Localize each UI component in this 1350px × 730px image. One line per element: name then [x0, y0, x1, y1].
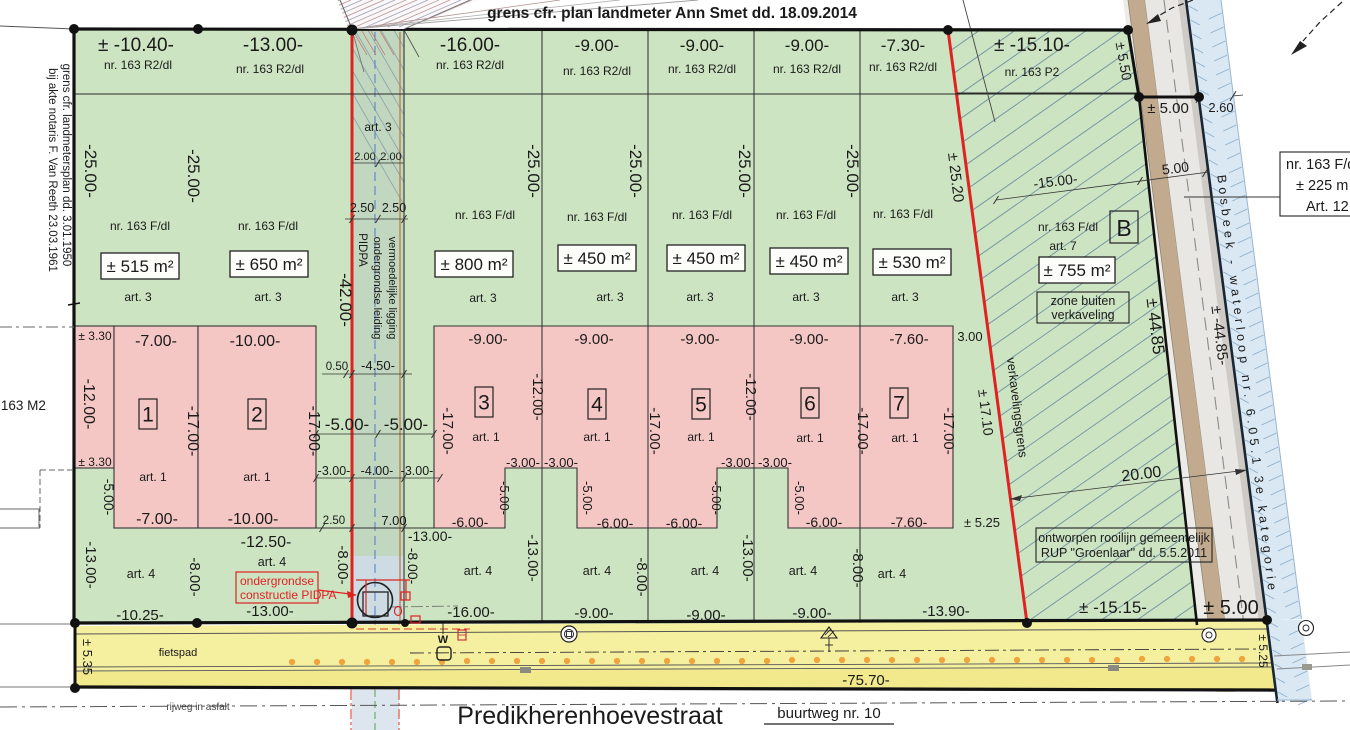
svg-text:-3.00-: -3.00- — [758, 455, 792, 470]
svg-text:-17.00-: -17.00- — [940, 407, 957, 455]
svg-text:art. 4: art. 4 — [127, 567, 156, 581]
svg-text:art. 1: art. 1 — [583, 430, 611, 444]
svg-text:art. 1: art. 1 — [139, 470, 167, 484]
svg-text:6: 6 — [804, 393, 816, 416]
svg-text:-25.00-: -25.00- — [626, 144, 645, 198]
svg-text:± 5.35: ± 5.35 — [80, 639, 95, 675]
svg-text:nr. 163 F/d: nr. 163 F/d — [1286, 157, 1350, 173]
svg-text:± 225 m: ± 225 m — [1296, 178, 1348, 194]
svg-text:Art. 12: Art. 12 — [1306, 199, 1349, 215]
svg-text:-25.00-: -25.00- — [843, 144, 862, 198]
svg-text:3: 3 — [478, 392, 490, 415]
svg-text:Predikherenhoevestraat: Predikherenhoevestraat — [457, 702, 722, 730]
svg-text:zone buiten: zone buiten — [1051, 294, 1116, 308]
svg-text:5.00: 5.00 — [1161, 158, 1190, 177]
svg-text:-13.00-: -13.00- — [524, 534, 541, 582]
svg-text:nr. 163 F/dl: nr. 163 F/dl — [672, 208, 732, 222]
svg-text:-5.00-: -5.00- — [792, 481, 807, 515]
svg-text:-17.00-: -17.00- — [439, 407, 456, 455]
svg-text:-5.00-: -5.00- — [101, 479, 117, 516]
svg-text:-12.00-: -12.00- — [742, 373, 759, 421]
svg-text:art. 3: art. 3 — [469, 291, 497, 305]
svg-text:nr. 163 F/dl: nr. 163 F/dl — [567, 210, 627, 224]
svg-text:art. 3: art. 3 — [596, 290, 624, 304]
svg-text:± -15.15-: ± -15.15- — [1079, 598, 1147, 617]
svg-text:-4.50-: -4.50- — [361, 358, 395, 373]
svg-text:nr. 163 F/dl: nr. 163 F/dl — [455, 208, 515, 222]
svg-text:nr. 163 R2/dl: nr. 163 R2/dl — [563, 64, 631, 78]
svg-text:-5.00-: -5.00- — [384, 415, 428, 434]
svg-text:0.50: 0.50 — [326, 361, 348, 373]
svg-text:-7.30-: -7.30- — [881, 36, 925, 55]
svg-text:± 5.25: ± 5.25 — [964, 515, 1000, 530]
svg-text:-42.00-: -42.00- — [336, 273, 355, 327]
svg-text:-6.00-: -6.00- — [666, 515, 703, 531]
svg-text:-25.00-: -25.00- — [735, 144, 754, 198]
svg-text:-7.00-: -7.00- — [136, 511, 178, 528]
svg-text:± 5.25: ± 5.25 — [1256, 634, 1270, 668]
svg-text:art. 3: art. 3 — [254, 290, 282, 304]
svg-text:-8.00-: -8.00- — [849, 548, 866, 587]
svg-text:art. 1: art. 1 — [243, 470, 271, 484]
svg-text:-10.00-: -10.00- — [230, 333, 281, 350]
svg-text:-75.70-: -75.70- — [842, 672, 890, 689]
svg-text:2.60: 2.60 — [1208, 100, 1233, 115]
svg-text:nr. 163 R2/dl: nr. 163 R2/dl — [236, 62, 304, 76]
svg-text:-8.00-: -8.00- — [633, 557, 650, 596]
svg-text:7: 7 — [893, 393, 905, 416]
svg-text:-3.00-: -3.00- — [318, 464, 351, 478]
svg-text:± 5.00: ± 5.00 — [1147, 100, 1189, 117]
svg-text:art. 4: art. 4 — [464, 564, 493, 578]
svg-text:-4.00-: -4.00- — [361, 464, 394, 478]
svg-text:W: W — [438, 634, 449, 646]
svg-text:-25.00-: -25.00- — [184, 149, 203, 203]
svg-text:nr. 163 F/dl: nr. 163 F/dl — [238, 219, 298, 233]
svg-text:art. 1: art. 1 — [687, 430, 715, 444]
svg-text:-17.00-: -17.00- — [646, 407, 663, 455]
svg-text:ondergrondse leiding: ondergrondse leiding — [371, 237, 383, 340]
svg-text:art. 7: art. 7 — [1049, 239, 1077, 253]
svg-text:2: 2 — [251, 404, 263, 427]
svg-text:-17.00-: -17.00- — [184, 406, 201, 457]
svg-text:-12.00-: -12.00- — [529, 373, 546, 421]
svg-text:-7.60-: -7.60- — [889, 331, 928, 348]
svg-text:nr. 163 F/dl: nr. 163 F/dl — [873, 207, 933, 221]
svg-text:-13.90-: -13.90- — [922, 603, 970, 620]
svg-text:4: 4 — [591, 394, 603, 417]
svg-text:-25.00-: -25.00- — [524, 144, 543, 198]
svg-text:nr. 163 R2/dl: nr. 163 R2/dl — [436, 58, 504, 72]
svg-text:± 650 m²: ± 650 m² — [236, 255, 303, 274]
svg-text:constructie PIDPA: constructie PIDPA — [240, 588, 336, 602]
svg-text:art. 1: art. 1 — [472, 430, 500, 444]
svg-text:ontworpen rooilijn gemeentelij: ontworpen rooilijn gemeentelijk — [1038, 531, 1210, 545]
svg-text:verkaveling: verkaveling — [1051, 308, 1114, 322]
svg-text:art. 3: art. 3 — [891, 290, 919, 304]
svg-text:nr. 163 F/dl: nr. 163 F/dl — [776, 208, 836, 222]
svg-text:RUP "Groenlaar" dd. 5.5.2011: RUP "Groenlaar" dd. 5.5.2011 — [1041, 546, 1207, 560]
svg-text:-8.00-: -8.00- — [186, 557, 203, 596]
svg-text:± 450 m²: ± 450 m² — [564, 249, 631, 268]
svg-text:-13.00-: -13.00- — [82, 541, 99, 589]
svg-text:± 3.30: ± 3.30 — [78, 329, 112, 343]
svg-text:-5.00-: -5.00- — [709, 481, 724, 515]
svg-text:art. 1: art. 1 — [796, 431, 824, 445]
svg-text:grens cfr. plan landmeter Ann: grens cfr. plan landmeter Ann Smet dd. 1… — [487, 5, 857, 22]
svg-text:art. 4: art. 4 — [258, 555, 287, 569]
svg-text:art. 4: art. 4 — [583, 564, 612, 578]
svg-text:nr. 163 F/dl: nr. 163 F/dl — [110, 219, 170, 233]
svg-text:± 450 m²: ± 450 m² — [673, 249, 740, 268]
svg-text:± 3.30: ± 3.30 — [78, 455, 112, 469]
svg-text:art. 1: art. 1 — [891, 431, 919, 445]
svg-text:± 800 m²: ± 800 m² — [441, 255, 508, 274]
svg-text:fietspad: fietspad — [159, 647, 198, 659]
svg-text:bij akte notaris F. Van Reeth: bij akte notaris F. Van Reeth 23.03.1961 — [46, 68, 58, 272]
svg-text:-12.50-: -12.50- — [241, 534, 292, 551]
svg-text:2.50: 2.50 — [350, 201, 374, 215]
svg-text:art. 4: art. 4 — [789, 564, 818, 578]
svg-text:-8.00-: -8.00- — [334, 545, 351, 584]
svg-text:art. 3: art. 3 — [686, 290, 714, 304]
svg-text:3.00: 3.00 — [957, 329, 982, 344]
svg-text:rijweg in asfalt: rijweg in asfalt — [166, 702, 230, 713]
svg-text:± 530 m²: ± 530 m² — [879, 253, 946, 272]
svg-text:vermoedelijke ligging: vermoedelijke ligging — [386, 237, 398, 340]
svg-text:-7.60-: -7.60- — [891, 514, 928, 530]
svg-text:± -10.40-: ± -10.40- — [98, 35, 174, 56]
svg-text:-8.00-: -8.00- — [405, 548, 421, 585]
svg-text:± 755 m²: ± 755 m² — [1044, 261, 1111, 280]
svg-text:-9.00-: -9.00- — [680, 331, 719, 348]
svg-text:buurtweg nr. 10: buurtweg nr. 10 — [777, 705, 880, 722]
svg-text:-3.00-: -3.00- — [721, 455, 755, 470]
svg-text:-16.00-: -16.00- — [440, 35, 500, 56]
svg-text:± 5.00: ± 5.00 — [1203, 597, 1258, 619]
svg-text:art. 3: art. 3 — [364, 120, 392, 134]
svg-text:-9.00-: -9.00- — [574, 331, 613, 348]
svg-text:-5.00-: -5.00- — [580, 481, 595, 515]
svg-text:-7.00-: -7.00- — [135, 333, 177, 350]
svg-text:± -15.10-: ± -15.10- — [994, 35, 1070, 56]
svg-text:art. 4: art. 4 — [878, 567, 907, 581]
svg-text:PIDPA: PIDPA — [356, 233, 368, 267]
svg-text:nr. 163 R2/dl: nr. 163 R2/dl — [773, 62, 841, 76]
svg-text:7.00: 7.00 — [381, 513, 406, 528]
svg-text:-13.00-: -13.00- — [739, 534, 756, 582]
svg-text:nr. 163 M2: nr. 163 M2 — [0, 398, 46, 413]
svg-text:ondergrondse: ondergrondse — [240, 574, 314, 588]
svg-text:-17.00-: -17.00- — [305, 406, 322, 457]
svg-text:nr. 163 R2/dl: nr. 163 R2/dl — [668, 62, 736, 76]
svg-text:2.00: 2.00 — [380, 151, 401, 163]
svg-text:± 450 m²: ± 450 m² — [776, 252, 843, 271]
svg-text:-25.00-: -25.00- — [81, 144, 100, 198]
svg-text:-6.00-: -6.00- — [597, 515, 634, 531]
svg-text:art. 3: art. 3 — [792, 290, 820, 304]
svg-text:-9.00-: -9.00- — [680, 36, 724, 55]
svg-text:art. 4: art. 4 — [691, 564, 720, 578]
svg-text:-5.00-: -5.00- — [497, 481, 512, 515]
svg-text:art. 3: art. 3 — [124, 290, 152, 304]
svg-text:-9.00-: -9.00- — [785, 36, 829, 55]
svg-text:1: 1 — [142, 404, 154, 427]
svg-text:-9.00-: -9.00- — [792, 605, 831, 622]
svg-text:-17.00-: -17.00- — [854, 407, 871, 455]
svg-text:-9.00-: -9.00- — [468, 331, 507, 348]
svg-text:2.50: 2.50 — [323, 515, 345, 527]
svg-text:-6.00-: -6.00- — [806, 514, 843, 530]
svg-text:-6.00-: -6.00- — [452, 514, 489, 530]
svg-text:-5.00-: -5.00- — [325, 415, 369, 434]
svg-text:nr. 163 F/dl: nr. 163 F/dl — [1038, 220, 1098, 234]
svg-text:-3.00-: -3.00- — [506, 455, 540, 470]
svg-text:-9.00-: -9.00- — [575, 36, 619, 55]
svg-text:-12.00-: -12.00- — [80, 379, 97, 430]
svg-text:-13.00-: -13.00- — [243, 35, 303, 56]
svg-text:-10.25-: -10.25- — [116, 607, 164, 624]
svg-text:nr. 163 R2/dl: nr. 163 R2/dl — [869, 60, 937, 74]
svg-text:-10.00-: -10.00- — [228, 511, 279, 528]
svg-text:2.50: 2.50 — [382, 201, 406, 215]
svg-text:-9.00-: -9.00- — [686, 607, 725, 624]
svg-text:grens cfr. landmetersplan dd.: grens cfr. landmetersplan dd. 3.01.1950 — [60, 64, 72, 267]
svg-text:± 515 m²: ± 515 m² — [107, 257, 174, 276]
svg-text:nr. 163 R2/dl: nr. 163 R2/dl — [104, 58, 172, 72]
svg-text:-13.00-: -13.00- — [246, 603, 294, 620]
svg-text:-3.00-: -3.00- — [544, 455, 578, 470]
svg-text:-9.00-: -9.00- — [574, 605, 613, 622]
svg-text:nr. 163 P2: nr. 163 P2 — [1005, 65, 1060, 79]
svg-text:B: B — [1116, 215, 1131, 241]
svg-text:2.00: 2.00 — [354, 151, 375, 163]
svg-text:-3.00-: -3.00- — [401, 464, 434, 478]
svg-text:-16.00-: -16.00- — [447, 604, 495, 621]
svg-text:-9.00-: -9.00- — [789, 331, 828, 348]
svg-text:5: 5 — [695, 394, 707, 417]
svg-text:-13.00-: -13.00- — [408, 528, 453, 544]
